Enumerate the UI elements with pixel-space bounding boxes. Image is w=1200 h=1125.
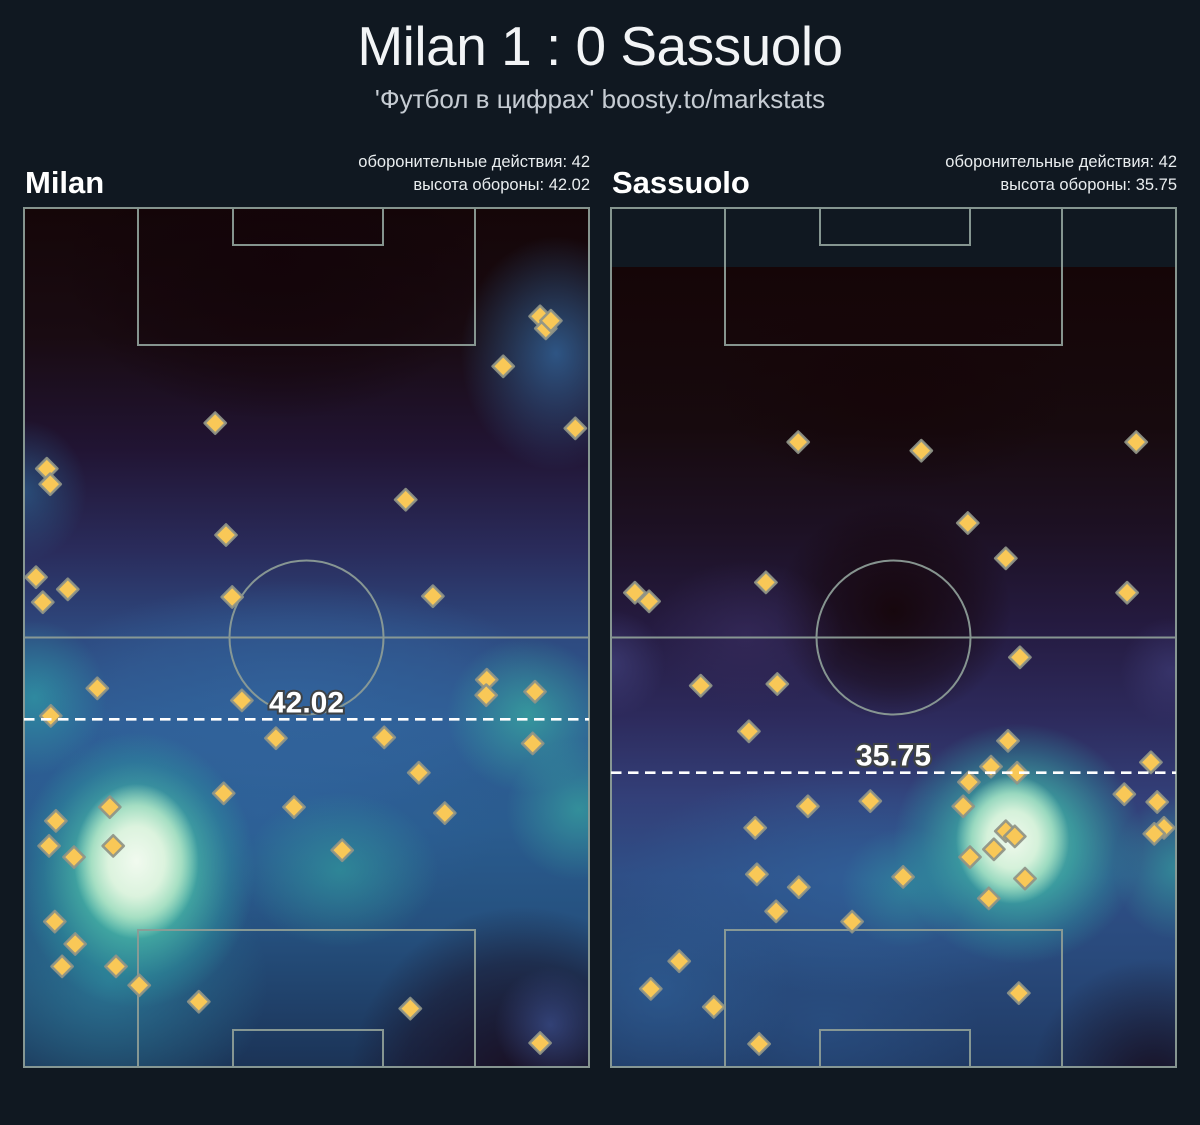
defensive-action-marker [766, 901, 787, 922]
match-defense-heatmap-figure: Milan 1 : 0 Sassuolo 'Футбол в цифрах' b… [0, 0, 1200, 1125]
defensive-action-marker [640, 978, 661, 999]
pitch-sassuolo: 35.75 [610, 207, 1177, 1068]
defensive-action-marker [40, 705, 61, 726]
team-label-milan: Milan [25, 165, 104, 201]
pitch-milan: 42.02 [23, 207, 590, 1068]
defensive-action-marker [332, 840, 353, 861]
defensive-action-marker [995, 548, 1016, 569]
stats-sassuolo: оборонительные действия: 42 высота оборо… [945, 151, 1177, 197]
defensive-action-marker [978, 888, 999, 909]
defensive-action-marker [703, 996, 724, 1017]
defensive-action-marker [893, 866, 914, 887]
defensive-action-marker [105, 956, 126, 977]
defensive-action-marker [25, 567, 46, 588]
defensive-action-marker [205, 413, 226, 434]
defensive-action-marker [63, 847, 84, 868]
defensive-action-marker [911, 440, 932, 461]
defense-height-label: 42.02 [269, 686, 344, 719]
defensive-action-marker [522, 733, 543, 754]
defensive-action-marker [231, 690, 252, 711]
team-label-sassuolo: Sassuolo [612, 165, 750, 201]
defensive-action-marker [39, 835, 60, 856]
defensive-action-marker [690, 675, 711, 696]
defensive-action-marker [767, 673, 788, 694]
defensive-action-marker [32, 592, 53, 613]
defensive-action-marker [65, 933, 86, 954]
defensive-action-marker [746, 864, 767, 885]
defensive-action-marker [87, 678, 108, 699]
defensive-action-marker [749, 1033, 770, 1054]
defensive-action-marker [395, 489, 416, 510]
defensive-action-marker [408, 762, 429, 783]
defensive-action-marker [434, 803, 455, 824]
defensive-action-marker [788, 877, 809, 898]
defensive-action-marker [959, 847, 980, 868]
defensive-action-marker [565, 418, 586, 439]
defensive-action-marker [188, 991, 209, 1012]
defense-height-stat: высота обороны: 35.75 [945, 174, 1177, 197]
defense-height-stat: высота обороны: 42.02 [358, 174, 590, 197]
defensive-action-marker [1147, 791, 1168, 812]
defensive-action-marker [400, 998, 421, 1019]
defensive-action-marker [57, 579, 78, 600]
pitch-panel-milan: Milan оборонительные действия: 42 высота… [23, 0, 590, 1125]
defensive-action-marker [983, 839, 1004, 860]
pitch-overlay-milan: 42.02 [23, 207, 590, 1068]
defensive-action-marker [103, 835, 124, 856]
defensive-action-marker [99, 797, 120, 818]
defensive-action-marker [1009, 647, 1030, 668]
defensive-action-marker [530, 1032, 551, 1053]
defensive-action-marker [957, 512, 978, 533]
defensive-action-marker [755, 572, 776, 593]
defensive-action-marker [860, 791, 881, 812]
defensive-action-marker [745, 817, 766, 838]
defensive-action-marker [797, 796, 818, 817]
defense-height-label: 35.75 [856, 740, 931, 773]
defensive-action-marker [958, 772, 979, 793]
pitch-overlay-sassuolo: 35.75 [610, 207, 1177, 1068]
defensive-action-marker [283, 797, 304, 818]
defensive-action-marker [44, 911, 65, 932]
pitch-panel-sassuolo: Sassuolo оборонительные действия: 42 выс… [610, 0, 1177, 1125]
defensive-action-marker [997, 730, 1018, 751]
defensive-actions-stat: оборонительные действия: 42 [358, 151, 590, 174]
pitch-markings [611, 208, 1176, 1067]
defensive-action-marker [52, 956, 73, 977]
defensive-action-marker [953, 796, 974, 817]
defensive-action-marker [45, 810, 66, 831]
defensive-action-marker [1126, 432, 1147, 453]
defensive-action-marker [215, 524, 236, 545]
defensive-action-marker [1114, 784, 1135, 805]
defensive-action-marker [265, 728, 286, 749]
defensive-action-marker [222, 586, 243, 607]
defensive-action-marker [476, 685, 497, 706]
defensive-action-marker [1140, 752, 1161, 773]
defensive-action-marker [738, 721, 759, 742]
defensive-action-marker [980, 756, 1001, 777]
defensive-action-marker [493, 356, 514, 377]
pitch-markings [24, 208, 589, 1067]
defensive-action-marker [524, 681, 545, 702]
defensive-action-marker [1014, 868, 1035, 889]
defensive-action-marker [788, 432, 809, 453]
defensive-action-marker [129, 975, 150, 996]
defensive-action-marker [374, 727, 395, 748]
defensive-action-marker [1117, 582, 1138, 603]
defensive-actions-stat: оборонительные действия: 42 [945, 151, 1177, 174]
defensive-action-marker [213, 783, 234, 804]
defensive-action-marker [422, 586, 443, 607]
defensive-action-marker [669, 951, 690, 972]
defensive-action-marker [1008, 983, 1029, 1004]
stats-milan: оборонительные действия: 42 высота оборо… [358, 151, 590, 197]
